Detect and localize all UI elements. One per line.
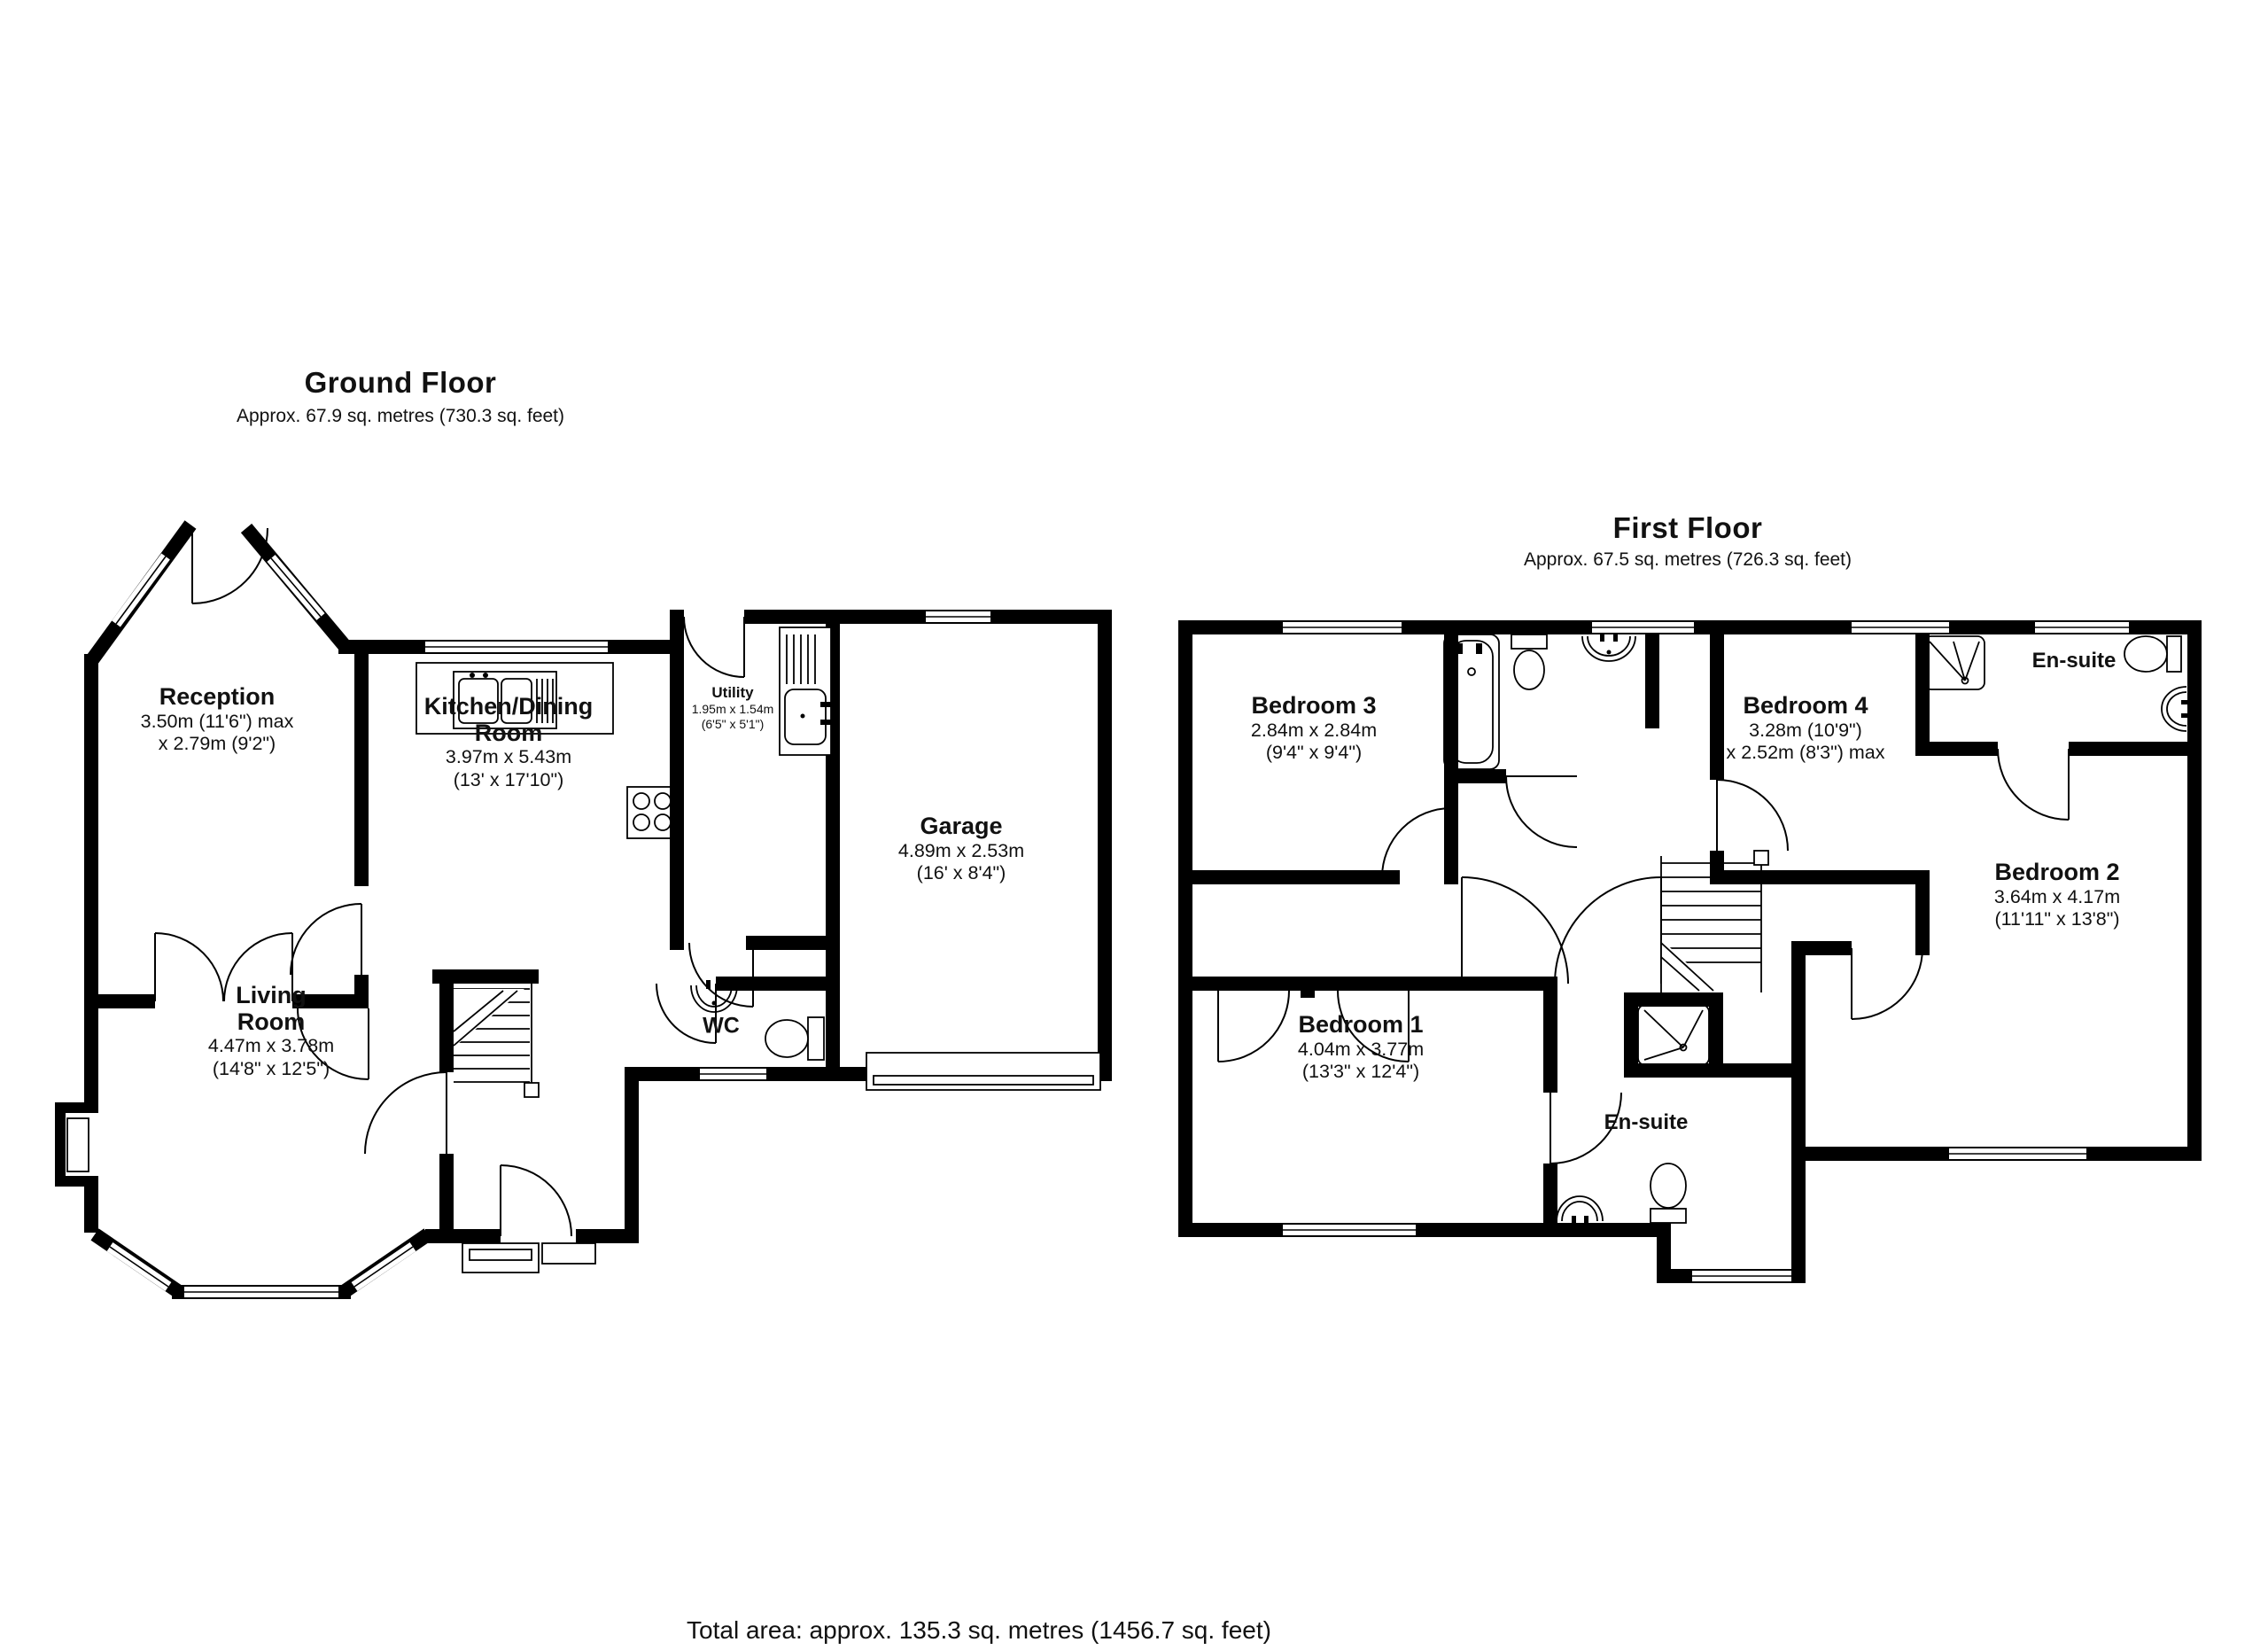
door-arc bbox=[1852, 948, 1922, 1019]
room-dims: 3.50m (11'6") max bbox=[141, 710, 294, 732]
room-label-garage: Garage 4.89m x 2.53m (16' x 8'4") bbox=[898, 813, 1024, 884]
room-name: Kitchen/Dining bbox=[424, 694, 594, 720]
room-label-ensuite-bottom: En-suite bbox=[1604, 1110, 1689, 1135]
room-dims: x 2.52m (8'3") max bbox=[1726, 742, 1884, 764]
first-doors bbox=[1218, 749, 2069, 1164]
door-arc bbox=[291, 904, 361, 975]
toilet bbox=[1651, 1164, 1686, 1223]
shower-tray bbox=[1638, 1005, 1709, 1065]
door-arc bbox=[1382, 808, 1451, 877]
room-dims: 3.97m x 5.43m bbox=[424, 746, 594, 768]
window bbox=[354, 1247, 413, 1287]
room-name: Utility bbox=[692, 685, 774, 702]
window bbox=[116, 556, 166, 624]
room-label-bedroom2: Bedroom 2 3.64m x 4.17m (11'11" x 13'8") bbox=[1994, 860, 2120, 930]
hob bbox=[627, 787, 675, 838]
room-dims: x 2.79m (9'2") bbox=[141, 733, 294, 755]
window bbox=[271, 558, 321, 617]
ground-floor-subtitle: Approx. 67.9 sq. metres (730.3 sq. feet) bbox=[237, 406, 564, 427]
room-label-bedroom3: Bedroom 3 2.84m x 2.84m (9'4" x 9'4") bbox=[1251, 693, 1377, 764]
room-label-reception: Reception 3.50m (11'6") max x 2.79m (9'2… bbox=[141, 684, 294, 755]
utility-sink bbox=[780, 627, 831, 755]
door-arc bbox=[684, 617, 744, 677]
door-arc bbox=[1555, 877, 1661, 984]
room-name: Bedroom 1 bbox=[1298, 1012, 1424, 1039]
door-arc bbox=[1506, 776, 1577, 847]
room-name: Bedroom 4 bbox=[1726, 693, 1884, 720]
ground-windows bbox=[67, 556, 990, 1292]
porch-steps bbox=[462, 1243, 595, 1273]
room-dims: 4.04m x 3.77m bbox=[1298, 1038, 1424, 1060]
room-label-living-room: Living Room 4.47m x 3.78m (14'8" x 12'5"… bbox=[208, 983, 334, 1080]
front-door-arc bbox=[501, 1165, 571, 1236]
room-dims: (11'11" x 13'8") bbox=[1994, 908, 2120, 930]
room-dims: 4.89m x 2.53m bbox=[898, 839, 1024, 861]
ground-doors bbox=[155, 528, 753, 1236]
room-dims: 1.95m x 1.54m bbox=[692, 702, 774, 718]
sink bbox=[1557, 1196, 1603, 1225]
room-label-bedroom1: Bedroom 1 4.04m x 3.77m (13'3" x 12'4") bbox=[1298, 1012, 1424, 1083]
sink bbox=[1582, 633, 1635, 661]
shower-tray bbox=[1924, 636, 1984, 689]
room-label-kitchen: Kitchen/Dining Room 3.97m x 5.43m (13' x… bbox=[424, 694, 594, 791]
window-seat bbox=[67, 1118, 89, 1171]
door-arc bbox=[1998, 749, 2069, 820]
room-dims: 4.47m x 3.78m bbox=[208, 1035, 334, 1057]
stairs bbox=[454, 984, 539, 1097]
room-name: Living bbox=[208, 983, 334, 1009]
door-arc bbox=[365, 1072, 447, 1154]
sink bbox=[2162, 687, 2190, 731]
door-arc bbox=[1462, 877, 1568, 984]
room-dims: (16' x 8'4") bbox=[898, 862, 1024, 884]
ground-outer-walls bbox=[55, 525, 1112, 1292]
room-dims: (6'5" x 5'1") bbox=[692, 717, 774, 733]
door-arc bbox=[1717, 780, 1788, 851]
room-name: Garage bbox=[898, 813, 1024, 840]
toilet bbox=[2124, 636, 2181, 672]
room-label-bedroom4: Bedroom 4 3.28m (10'9") x 2.52m (8'3") m… bbox=[1726, 693, 1884, 764]
bathroom-fixtures bbox=[1444, 633, 1635, 769]
room-name: Reception bbox=[141, 684, 294, 711]
closet-door-arc bbox=[1218, 991, 1289, 1062]
room-label-wc: WC bbox=[703, 1014, 740, 1039]
first-windows bbox=[1283, 627, 2129, 1276]
total-area-text: Total area: approx. 135.3 sq. metres (14… bbox=[687, 1616, 1271, 1645]
room-label-utility: Utility 1.95m x 1.54m (6'5" x 5'1") bbox=[692, 685, 774, 733]
ground-floor-title: Ground Floor bbox=[305, 366, 497, 400]
room-dims: (9'4" x 9'4") bbox=[1251, 742, 1377, 764]
room-dims: (13' x 17'10") bbox=[424, 769, 594, 791]
first-floor-plan bbox=[1152, 558, 2250, 1338]
room-dims: 2.84m x 2.84m bbox=[1251, 719, 1377, 741]
room-dims: 3.28m (10'9") bbox=[1726, 719, 1884, 741]
window bbox=[110, 1247, 168, 1287]
room-name: Room bbox=[424, 720, 594, 747]
room-name: Bedroom 3 bbox=[1251, 693, 1377, 720]
floorplan-page: Ground Floor Approx. 67.9 sq. metres (73… bbox=[0, 0, 2268, 1650]
toilet bbox=[765, 1017, 824, 1060]
room-name: Room bbox=[208, 1009, 334, 1036]
room-label-ensuite-top: En-suite bbox=[2032, 649, 2117, 673]
ground-floor-plan bbox=[53, 496, 1152, 1311]
toilet bbox=[1511, 634, 1547, 689]
room-dims: (13'3" x 12'4") bbox=[1298, 1061, 1424, 1083]
first-floor-subtitle: Approx. 67.5 sq. metres (726.3 sq. feet) bbox=[1524, 549, 1852, 571]
garage-door bbox=[866, 1053, 1100, 1090]
room-dims: 3.64m x 4.17m bbox=[1994, 885, 2120, 907]
room-name: Bedroom 2 bbox=[1994, 860, 2120, 886]
first-floor-title: First Floor bbox=[1613, 511, 1763, 545]
room-dims: (14'8" x 12'5") bbox=[208, 1058, 334, 1080]
